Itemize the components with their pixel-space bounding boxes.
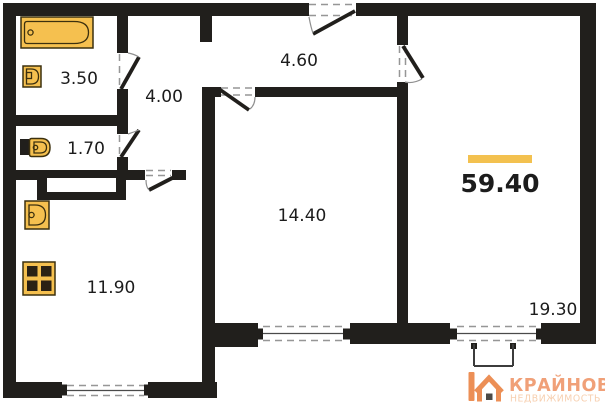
- vent-shaft-inner: [47, 178, 116, 192]
- wall-segment: [3, 3, 309, 16]
- wall-segment: [356, 3, 596, 16]
- living-room-area-label: 19.30: [529, 300, 578, 320]
- door-swing-arc: [128, 53, 139, 57]
- kitchen-area-label: 11.90: [87, 278, 136, 298]
- bathroom-area-label: 3.50: [60, 69, 98, 89]
- window-living-bottom: [448, 327, 545, 341]
- door-living-room: [400, 46, 424, 83]
- window-room-bottom: [254, 327, 352, 341]
- logo-k-stem: [469, 372, 475, 401]
- balcony: [471, 343, 516, 366]
- logo: КРАЙНОВ НЕДВИЖИМОСТЬ: [469, 372, 605, 403]
- window-kitchen-bottom: [58, 385, 153, 396]
- wall-segment: [148, 382, 217, 398]
- wall-segment: [117, 89, 128, 115]
- balcony-outline: [474, 344, 513, 366]
- door-leaf: [121, 130, 139, 157]
- door-swing-arc: [309, 17, 313, 33]
- toilet-area-label: 1.70: [67, 139, 105, 159]
- wall-segment: [13, 115, 128, 126]
- door-swing-arc: [405, 79, 422, 83]
- hallway-area-label: 4.00: [145, 87, 183, 107]
- door-leaf: [121, 57, 139, 89]
- door-leaf: [149, 172, 184, 190]
- wall-segment: [202, 87, 215, 398]
- floorplan: 3.50 4.00 4.60 1.70 14.40 11.90 19.30 59…: [0, 0, 605, 403]
- sink-icon: [23, 66, 41, 87]
- window-cap: [58, 385, 67, 396]
- door-leaf: [219, 89, 249, 110]
- wall-segment: [541, 323, 596, 344]
- toilet-tank: [20, 139, 29, 155]
- stove-icon: [23, 262, 55, 295]
- corridor-area-label: 4.60: [280, 51, 318, 71]
- window-cap: [448, 329, 457, 340]
- window-cap: [254, 329, 263, 340]
- wall-segment: [3, 3, 16, 398]
- wall-segment: [200, 16, 212, 42]
- toilet-icon: [20, 139, 50, 157]
- door-room: [219, 88, 255, 110]
- wall-segment: [3, 382, 62, 398]
- window-cap: [144, 385, 153, 396]
- room-area-label: 14.40: [278, 206, 327, 226]
- door-entrance: [309, 5, 356, 35]
- wall-segment: [397, 16, 408, 45]
- kitchen-sink-icon: [25, 201, 49, 229]
- door-kitchen: [146, 171, 184, 191]
- wall-segment: [117, 126, 128, 134]
- window-cap: [343, 329, 352, 340]
- door-toilet: [120, 130, 140, 157]
- bathtub-icon: [21, 17, 93, 48]
- floorplan-drawing: 3.50 4.00 4.60 1.70 14.40 11.90 19.30 59…: [0, 0, 605, 403]
- logo-tagline-text: НЕДВИЖИМОСТЬ: [510, 394, 601, 403]
- logo-house-door: [486, 394, 493, 401]
- wall-segment: [580, 3, 596, 344]
- total-area: 59.40: [460, 155, 539, 198]
- total-area-accent-bar: [468, 155, 532, 163]
- wall-segment: [255, 87, 397, 97]
- door-leaf: [313, 11, 355, 34]
- wall-segment: [397, 82, 408, 323]
- wall-segment: [215, 323, 258, 347]
- door-swing-arc: [250, 97, 255, 109]
- total-area-value: 59.40: [460, 169, 539, 198]
- door-bathroom: [120, 53, 140, 89]
- door-opening-dashes: [146, 171, 171, 176]
- vent-shaft: [37, 178, 126, 200]
- window-cap: [536, 329, 545, 340]
- wall-segment: [350, 323, 450, 344]
- wall-segment: [117, 16, 128, 53]
